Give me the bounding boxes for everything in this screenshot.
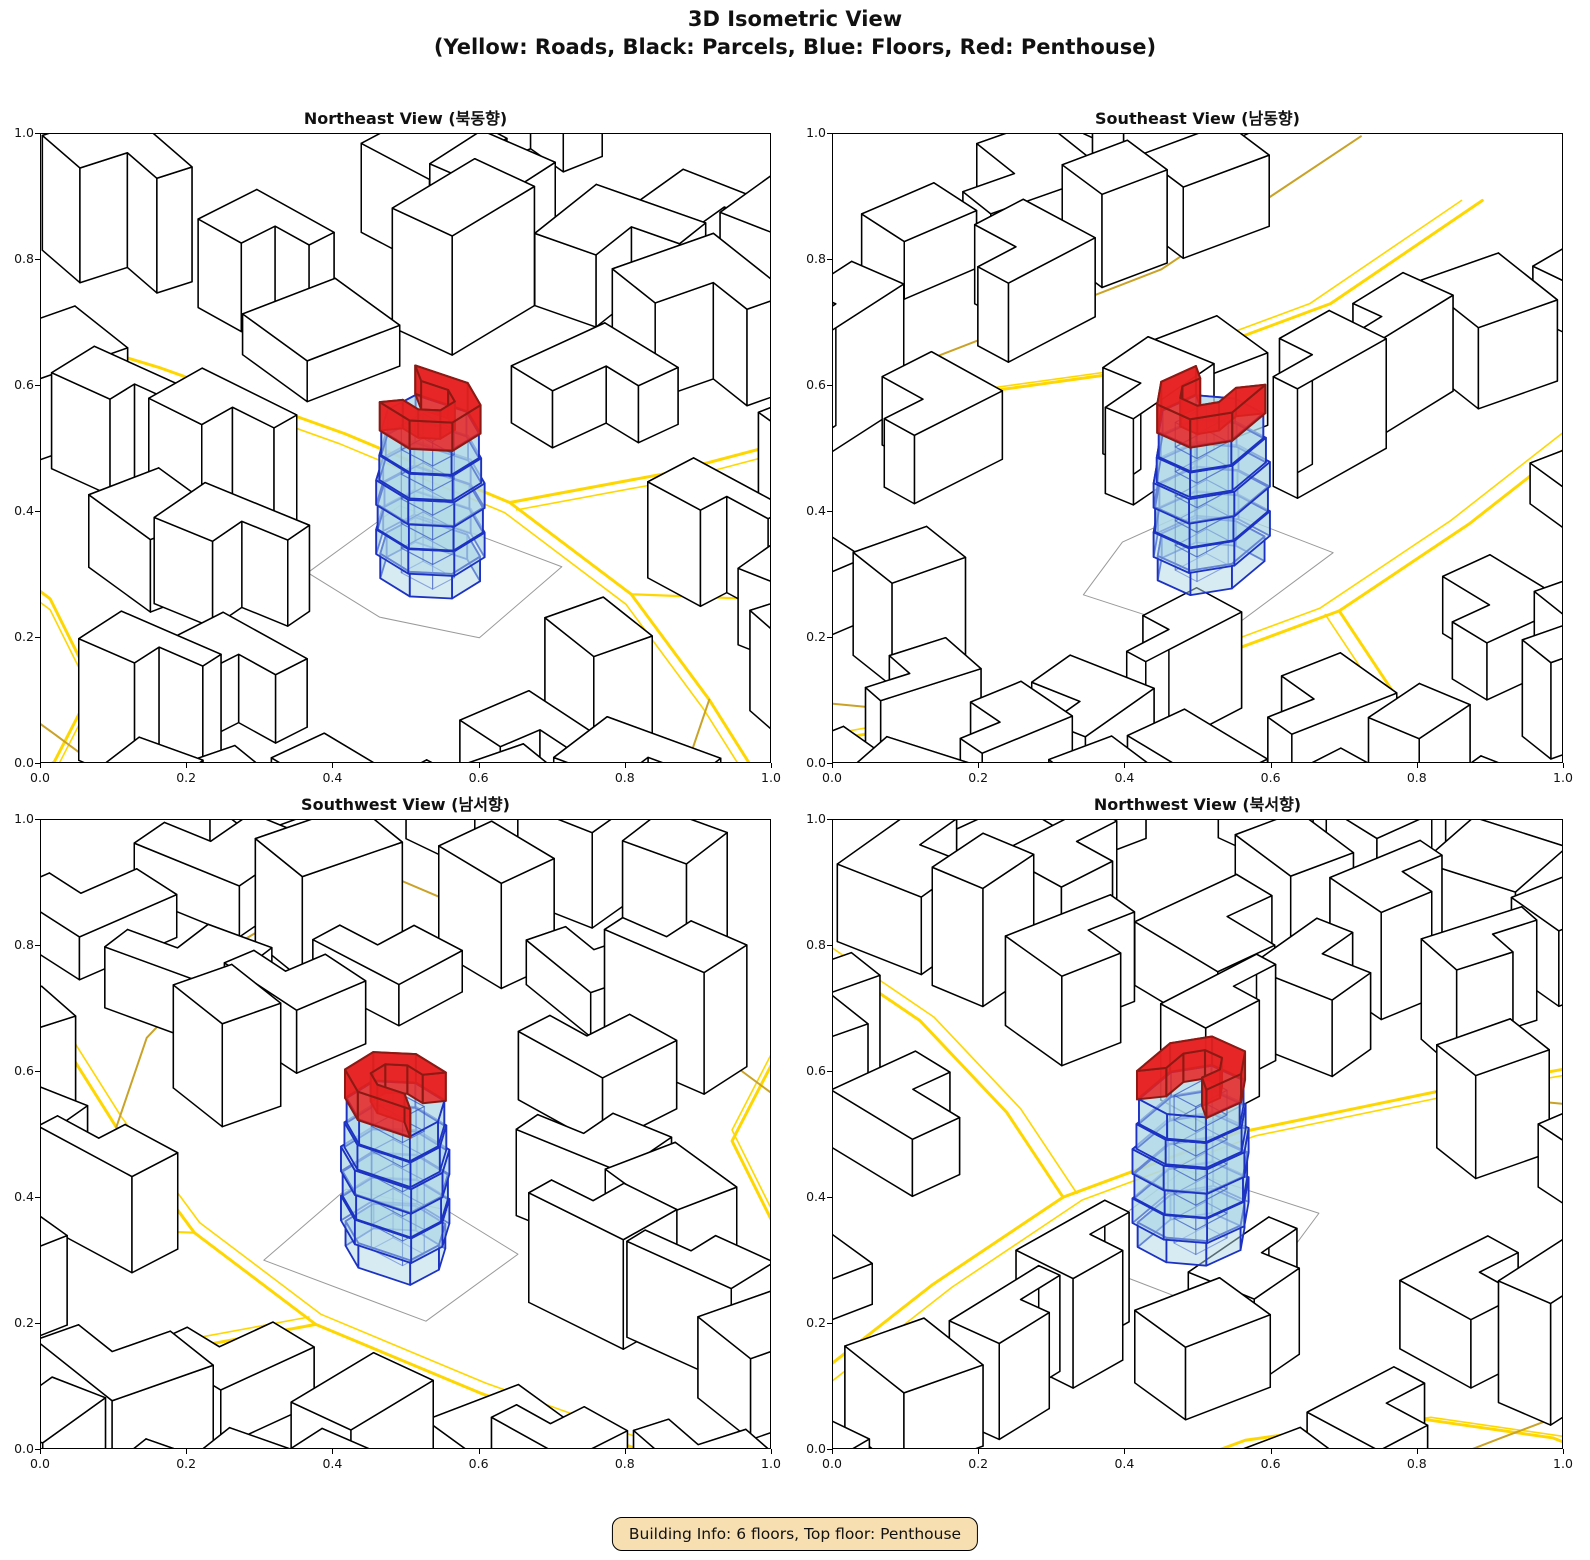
x-tick-label: 1.0	[1541, 1456, 1585, 1471]
x-tick-label: 0.2	[956, 1456, 1000, 1471]
x-tick-label: 0.8	[1395, 1456, 1439, 1471]
x-tick-mark	[479, 763, 480, 768]
y-tick-mark	[35, 511, 40, 512]
y-tick-label: 0.2	[786, 1315, 826, 1330]
subplot-northeast: Northeast View (북동향) 0.00.20.40.60.81.00…	[40, 133, 771, 763]
x-tick-label: 0.2	[164, 770, 208, 785]
y-tick-mark	[35, 763, 40, 764]
x-tick-mark	[1417, 1449, 1418, 1454]
y-tick-mark	[35, 1323, 40, 1324]
y-tick-label: 0.4	[0, 1189, 34, 1204]
x-tick-mark	[1271, 1449, 1272, 1454]
y-tick-mark	[35, 133, 40, 134]
x-tick-mark	[40, 1449, 41, 1454]
y-tick-mark	[35, 637, 40, 638]
x-tick-label: 0.0	[18, 1456, 62, 1471]
x-tick-mark	[1124, 763, 1125, 768]
y-tick-label: 0.6	[786, 377, 826, 392]
isometric-scene-northeast	[41, 134, 770, 762]
x-tick-label: 1.0	[1541, 770, 1585, 785]
y-tick-mark	[827, 819, 832, 820]
x-tick-label: 0.0	[810, 1456, 854, 1471]
x-tick-label: 0.8	[1395, 770, 1439, 785]
subplot-southwest: Southwest View (남서향) 0.00.20.40.60.81.00…	[40, 819, 771, 1449]
x-tick-mark	[186, 763, 187, 768]
y-tick-label: 1.0	[0, 125, 34, 140]
y-tick-mark	[35, 259, 40, 260]
x-tick-label: 0.2	[956, 770, 1000, 785]
y-tick-mark	[35, 945, 40, 946]
y-tick-label: 0.0	[0, 755, 34, 770]
figure: 3D Isometric View (Yellow: Roads, Black:…	[0, 0, 1590, 1560]
x-tick-mark	[186, 1449, 187, 1454]
x-tick-mark	[332, 763, 333, 768]
x-tick-label: 0.4	[310, 1456, 354, 1471]
y-tick-label: 0.4	[786, 1189, 826, 1204]
subplot-northwest: Northwest View (북서향) 0.00.20.40.60.81.00…	[832, 819, 1563, 1449]
x-tick-mark	[771, 1449, 772, 1454]
x-tick-mark	[625, 1449, 626, 1454]
plot-area-northwest	[832, 819, 1563, 1449]
subplot-title-northeast: Northeast View (북동향)	[40, 105, 771, 129]
x-tick-label: 0.8	[603, 770, 647, 785]
y-tick-mark	[827, 259, 832, 260]
x-tick-mark	[1271, 763, 1272, 768]
y-tick-label: 0.0	[0, 1441, 34, 1456]
x-tick-mark	[625, 763, 626, 768]
y-tick-mark	[35, 1071, 40, 1072]
y-tick-mark	[827, 763, 832, 764]
subplot-title-northwest: Northwest View (북서향)	[832, 791, 1563, 815]
building-info-text: Building Info: 6 floors, Top floor: Pent…	[629, 1525, 961, 1543]
x-tick-label: 1.0	[749, 770, 793, 785]
x-tick-mark	[1563, 1449, 1564, 1454]
y-tick-mark	[827, 1323, 832, 1324]
plot-area-northeast	[40, 133, 771, 763]
y-tick-label: 0.8	[0, 937, 34, 952]
y-tick-mark	[827, 1197, 832, 1198]
y-tick-label: 0.0	[786, 1441, 826, 1456]
isometric-scene-northwest	[833, 820, 1562, 1448]
x-tick-mark	[332, 1449, 333, 1454]
y-tick-mark	[827, 945, 832, 946]
building-info-box: Building Info: 6 floors, Top floor: Pent…	[612, 1517, 978, 1551]
y-tick-mark	[35, 1449, 40, 1450]
x-tick-label: 0.6	[457, 1456, 501, 1471]
x-tick-mark	[978, 763, 979, 768]
figure-title: 3D Isometric View (Yellow: Roads, Black:…	[0, 6, 1590, 61]
y-tick-label: 1.0	[786, 125, 826, 140]
x-tick-label: 0.4	[1102, 1456, 1146, 1471]
isometric-scene-southeast	[833, 134, 1562, 762]
y-tick-label: 0.4	[0, 503, 34, 518]
subplot-southeast: Southeast View (남동향) 0.00.20.40.60.81.00…	[832, 133, 1563, 763]
y-tick-label: 0.8	[786, 251, 826, 266]
y-tick-mark	[35, 819, 40, 820]
y-tick-mark	[827, 511, 832, 512]
x-tick-mark	[40, 763, 41, 768]
x-tick-label: 0.6	[1249, 770, 1293, 785]
y-tick-label: 0.4	[786, 503, 826, 518]
x-tick-mark	[1124, 1449, 1125, 1454]
x-tick-label: 0.6	[1249, 1456, 1293, 1471]
subplot-title-southwest: Southwest View (남서향)	[40, 791, 771, 815]
y-tick-label: 0.2	[786, 629, 826, 644]
y-tick-mark	[827, 133, 832, 134]
plot-area-southwest	[40, 819, 771, 1449]
y-tick-label: 0.0	[786, 755, 826, 770]
x-tick-label: 0.2	[164, 1456, 208, 1471]
y-tick-mark	[35, 1197, 40, 1198]
y-tick-label: 1.0	[0, 811, 34, 826]
y-tick-label: 0.2	[0, 629, 34, 644]
x-tick-label: 0.0	[810, 770, 854, 785]
x-tick-mark	[479, 1449, 480, 1454]
x-tick-label: 1.0	[749, 1456, 793, 1471]
figure-title-line1: 3D Isometric View	[0, 6, 1590, 34]
y-tick-label: 0.2	[0, 1315, 34, 1330]
y-tick-mark	[35, 385, 40, 386]
x-tick-mark	[832, 1449, 833, 1454]
y-tick-mark	[827, 385, 832, 386]
figure-title-line2: (Yellow: Roads, Black: Parcels, Blue: Fl…	[0, 34, 1590, 62]
isometric-scene-southwest	[41, 820, 770, 1448]
y-tick-mark	[827, 1449, 832, 1450]
y-tick-mark	[827, 1071, 832, 1072]
x-tick-mark	[771, 763, 772, 768]
y-tick-label: 0.8	[786, 937, 826, 952]
x-tick-label: 0.4	[310, 770, 354, 785]
x-tick-label: 0.4	[1102, 770, 1146, 785]
x-tick-mark	[978, 1449, 979, 1454]
x-tick-mark	[832, 763, 833, 768]
y-tick-label: 0.6	[0, 377, 34, 392]
penthouse-layer	[380, 365, 481, 451]
y-tick-label: 0.6	[786, 1063, 826, 1078]
x-tick-label: 0.8	[603, 1456, 647, 1471]
y-tick-mark	[827, 637, 832, 638]
y-tick-label: 1.0	[786, 811, 826, 826]
subplot-title-southeast: Southeast View (남동향)	[832, 105, 1563, 129]
y-tick-label: 0.6	[0, 1063, 34, 1078]
y-tick-label: 0.8	[0, 251, 34, 266]
x-tick-mark	[1563, 763, 1564, 768]
x-tick-label: 0.0	[18, 770, 62, 785]
x-tick-label: 0.6	[457, 770, 501, 785]
x-tick-mark	[1417, 763, 1418, 768]
plot-area-southeast	[832, 133, 1563, 763]
